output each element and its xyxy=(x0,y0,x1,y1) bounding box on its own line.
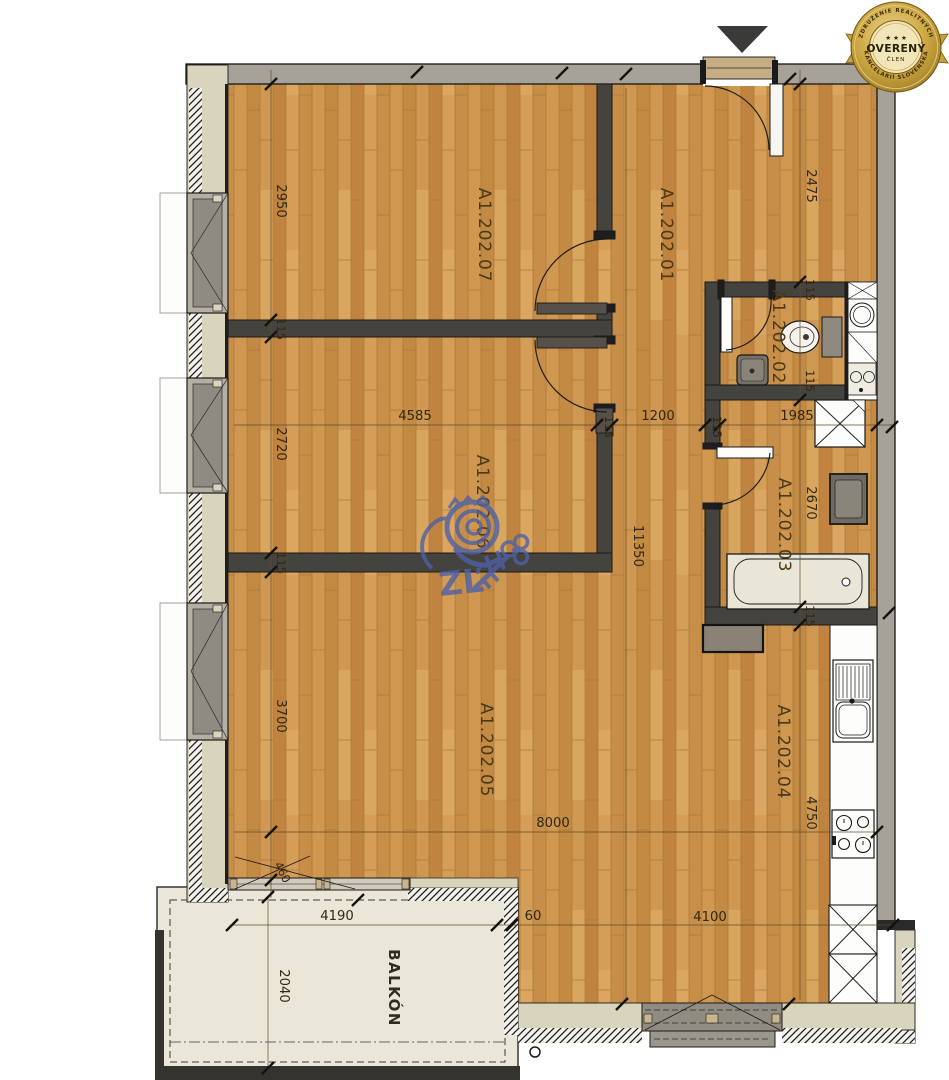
bathroom-vanity-icon xyxy=(830,474,867,524)
section-marker-icon xyxy=(530,1047,540,1057)
dim-115: 115 xyxy=(803,370,817,392)
shaft-icon xyxy=(815,400,865,447)
badge-sublabel: ČLEN xyxy=(887,56,906,63)
dim-2475: 2475 xyxy=(803,169,818,203)
bathtub-icon xyxy=(727,554,869,609)
dim-3700: 3700 xyxy=(273,699,288,733)
dim-4100: 4100 xyxy=(693,910,727,925)
tall-cabinet-icon xyxy=(829,905,877,1003)
dim-60: 60 xyxy=(525,909,542,924)
watermark-letters: ZĽ xyxy=(437,560,486,603)
dim-11350: 11350 xyxy=(630,525,645,567)
kitchen-sink-icon xyxy=(833,660,873,742)
left-windows xyxy=(160,193,228,740)
wc-sink-icon xyxy=(737,355,768,385)
badge-label: OVERENÝ xyxy=(866,42,925,55)
dim-4750: 4750 xyxy=(803,796,818,830)
window-icon xyxy=(160,193,228,313)
room-label-01: A1.202.01 xyxy=(656,188,676,283)
dim-1985: 1985 xyxy=(780,409,814,424)
dim-115: 115 xyxy=(803,279,817,301)
room-label-04: A1.202.04 xyxy=(773,705,793,800)
dim-115: 115 xyxy=(274,552,288,574)
dim-115: 115 xyxy=(710,416,724,438)
dim-2040: 2040 xyxy=(276,969,291,1003)
dim-115: 115 xyxy=(803,605,817,627)
washer-column-icon xyxy=(848,282,877,400)
balcony-door-bottom xyxy=(642,995,782,1047)
dim-115: 115 xyxy=(602,416,616,438)
floor-plan: 2950 115 2720 115 3700 4585 115 1200 115… xyxy=(0,0,949,1080)
window-icon xyxy=(160,378,228,493)
balcony-edge xyxy=(157,1066,520,1080)
room-label-03: A1.202.03 xyxy=(774,478,794,573)
wardrobe-icon xyxy=(703,625,763,652)
dim-115: 115 xyxy=(274,318,288,340)
kitchen-counter xyxy=(829,625,877,1003)
dim-4585: 4585 xyxy=(398,409,432,424)
dim-2950: 2950 xyxy=(273,184,288,218)
dim-2720: 2720 xyxy=(273,427,288,461)
room-label-05: A1.202.05 xyxy=(476,703,496,798)
room-label-02: A1.202.02 xyxy=(768,290,788,385)
room-label-07: A1.202.07 xyxy=(474,188,494,283)
badge-stars: ★ ★ ★ xyxy=(885,34,907,42)
cooktop-icon xyxy=(832,810,874,858)
pointer-triangle-icon xyxy=(717,26,768,53)
dim-2670: 2670 xyxy=(803,486,818,520)
dim-4190: 4190 xyxy=(320,909,354,924)
balcony-label: BALKÓN xyxy=(385,949,404,1027)
dim-1200: 1200 xyxy=(641,409,675,424)
dim-8000: 8000 xyxy=(536,816,570,831)
window-icon xyxy=(160,603,228,740)
